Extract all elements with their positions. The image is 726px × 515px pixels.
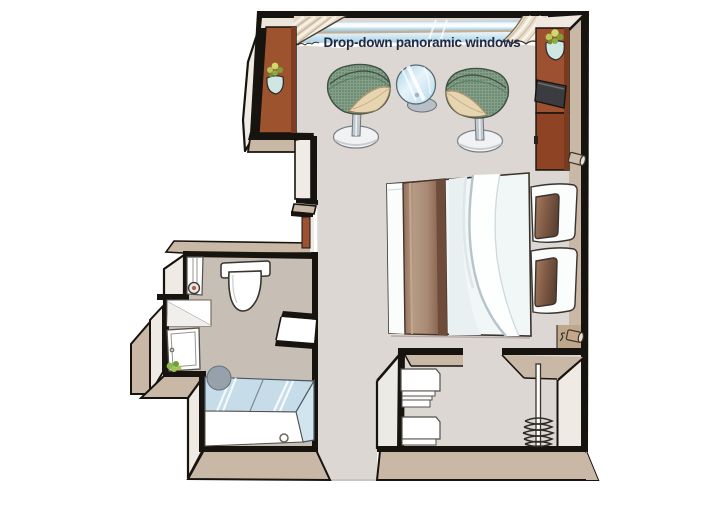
svg-text:Drop-down panoramic windows: Drop-down panoramic windows: [324, 35, 521, 50]
